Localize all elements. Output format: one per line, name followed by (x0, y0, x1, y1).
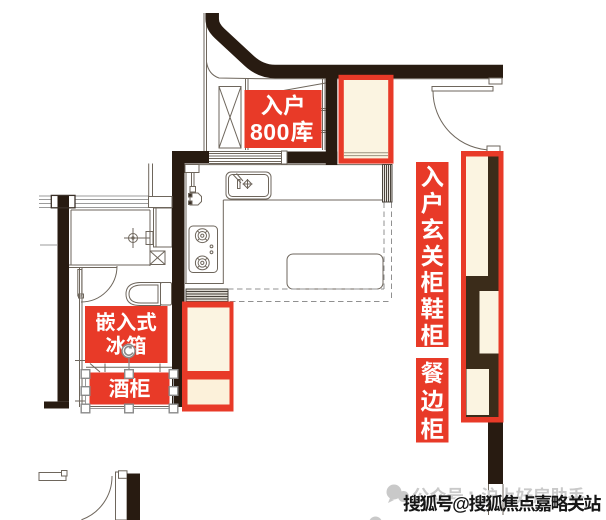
svg-text:800: 800 (250, 119, 290, 145)
svg-text:@: @ (452, 494, 470, 514)
